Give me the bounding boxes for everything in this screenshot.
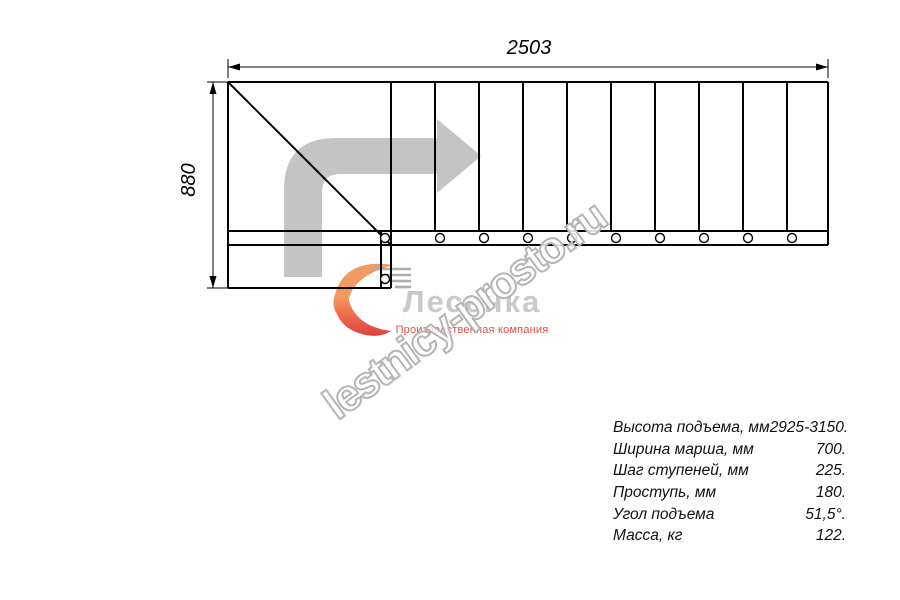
spec-value: 180. (816, 482, 846, 504)
spec-value: 225. (816, 460, 846, 482)
height-dimension-label: 880 (178, 150, 201, 210)
spec-value: 51,5°. (805, 504, 846, 526)
spec-row-height: Высота подъема, мм 2925-3150. (613, 417, 846, 439)
blueprint-canvas: 2503 880 Лесенка Производственная компан… (0, 0, 900, 600)
height-dimension-lines (207, 82, 228, 288)
spec-row-march-width: Ширина марша, мм 700. (613, 439, 846, 461)
spec-label: Высота подъема, мм (613, 417, 770, 439)
direction-arrow-icon (284, 119, 481, 277)
width-dimension-label: 2503 (490, 37, 568, 60)
spec-row-step-pitch: Шаг ступеней, мм 225. (613, 460, 846, 482)
spec-label: Шаг ступеней, мм (613, 460, 749, 482)
spec-label: Масса, кг (613, 525, 682, 547)
spec-label: Ширина марша, мм (613, 439, 754, 461)
spec-label: Угол подъема (613, 504, 714, 526)
specs-table: Высота подъема, мм 2925-3150. Ширина мар… (613, 417, 846, 547)
spec-value: 122. (816, 525, 846, 547)
spec-label: Проступь, мм (613, 482, 716, 504)
width-dimension-lines (228, 59, 828, 78)
spec-row-tread: Проступь, мм 180. (613, 482, 846, 504)
spec-row-angle: Угол подъема 51,5°. (613, 504, 846, 526)
spec-value: 700. (816, 439, 846, 461)
spec-row-mass: Масса, кг 122. (613, 525, 846, 547)
spec-value: 2925-3150. (770, 417, 848, 439)
